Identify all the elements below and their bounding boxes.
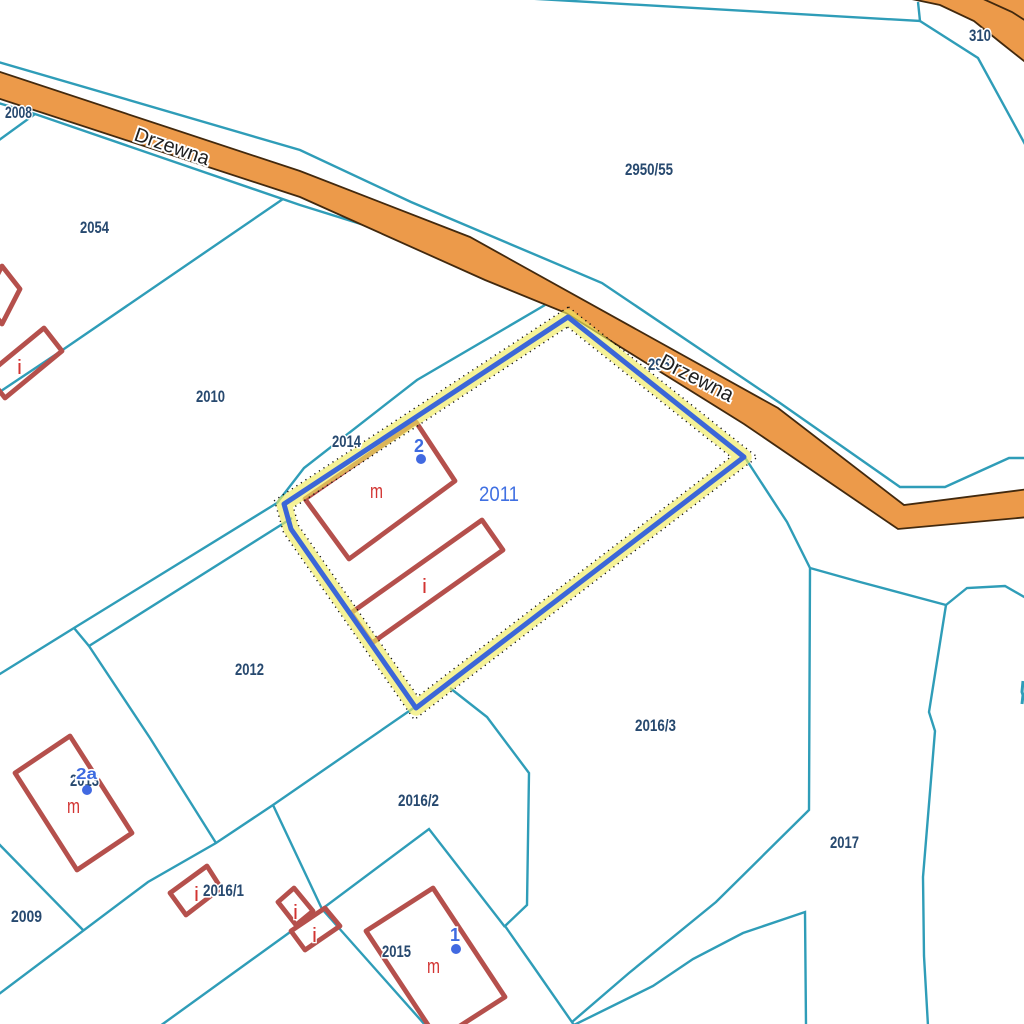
svg-text:1: 1 <box>450 924 460 945</box>
svg-text:2012: 2012 <box>235 660 264 679</box>
svg-text:2016/2: 2016/2 <box>398 791 439 810</box>
svg-text:2: 2 <box>414 435 424 456</box>
svg-text:i: i <box>17 357 22 379</box>
svg-text:m: m <box>67 796 80 818</box>
svg-text:2008: 2008 <box>5 103 32 122</box>
svg-text:2016/3: 2016/3 <box>635 716 676 735</box>
svg-text:2014: 2014 <box>332 432 361 451</box>
svg-text:2017: 2017 <box>830 833 859 852</box>
svg-text:m: m <box>427 956 440 978</box>
svg-text:2054: 2054 <box>80 218 109 237</box>
svg-text:2011: 2011 <box>479 482 519 506</box>
svg-text:i: i <box>194 884 199 906</box>
svg-text:2010: 2010 <box>196 387 225 406</box>
svg-text:2015: 2015 <box>382 942 411 961</box>
svg-text:m: m <box>370 481 383 503</box>
svg-text:i: i <box>312 925 317 947</box>
svg-text:310: 310 <box>969 26 991 45</box>
svg-text:i: i <box>293 902 298 924</box>
svg-text:2a: 2a <box>76 766 97 783</box>
svg-text:2009: 2009 <box>11 907 42 926</box>
svg-text:i: i <box>422 576 427 598</box>
svg-text:2950/55: 2950/55 <box>625 160 673 179</box>
svg-text:2016/1: 2016/1 <box>203 881 244 900</box>
